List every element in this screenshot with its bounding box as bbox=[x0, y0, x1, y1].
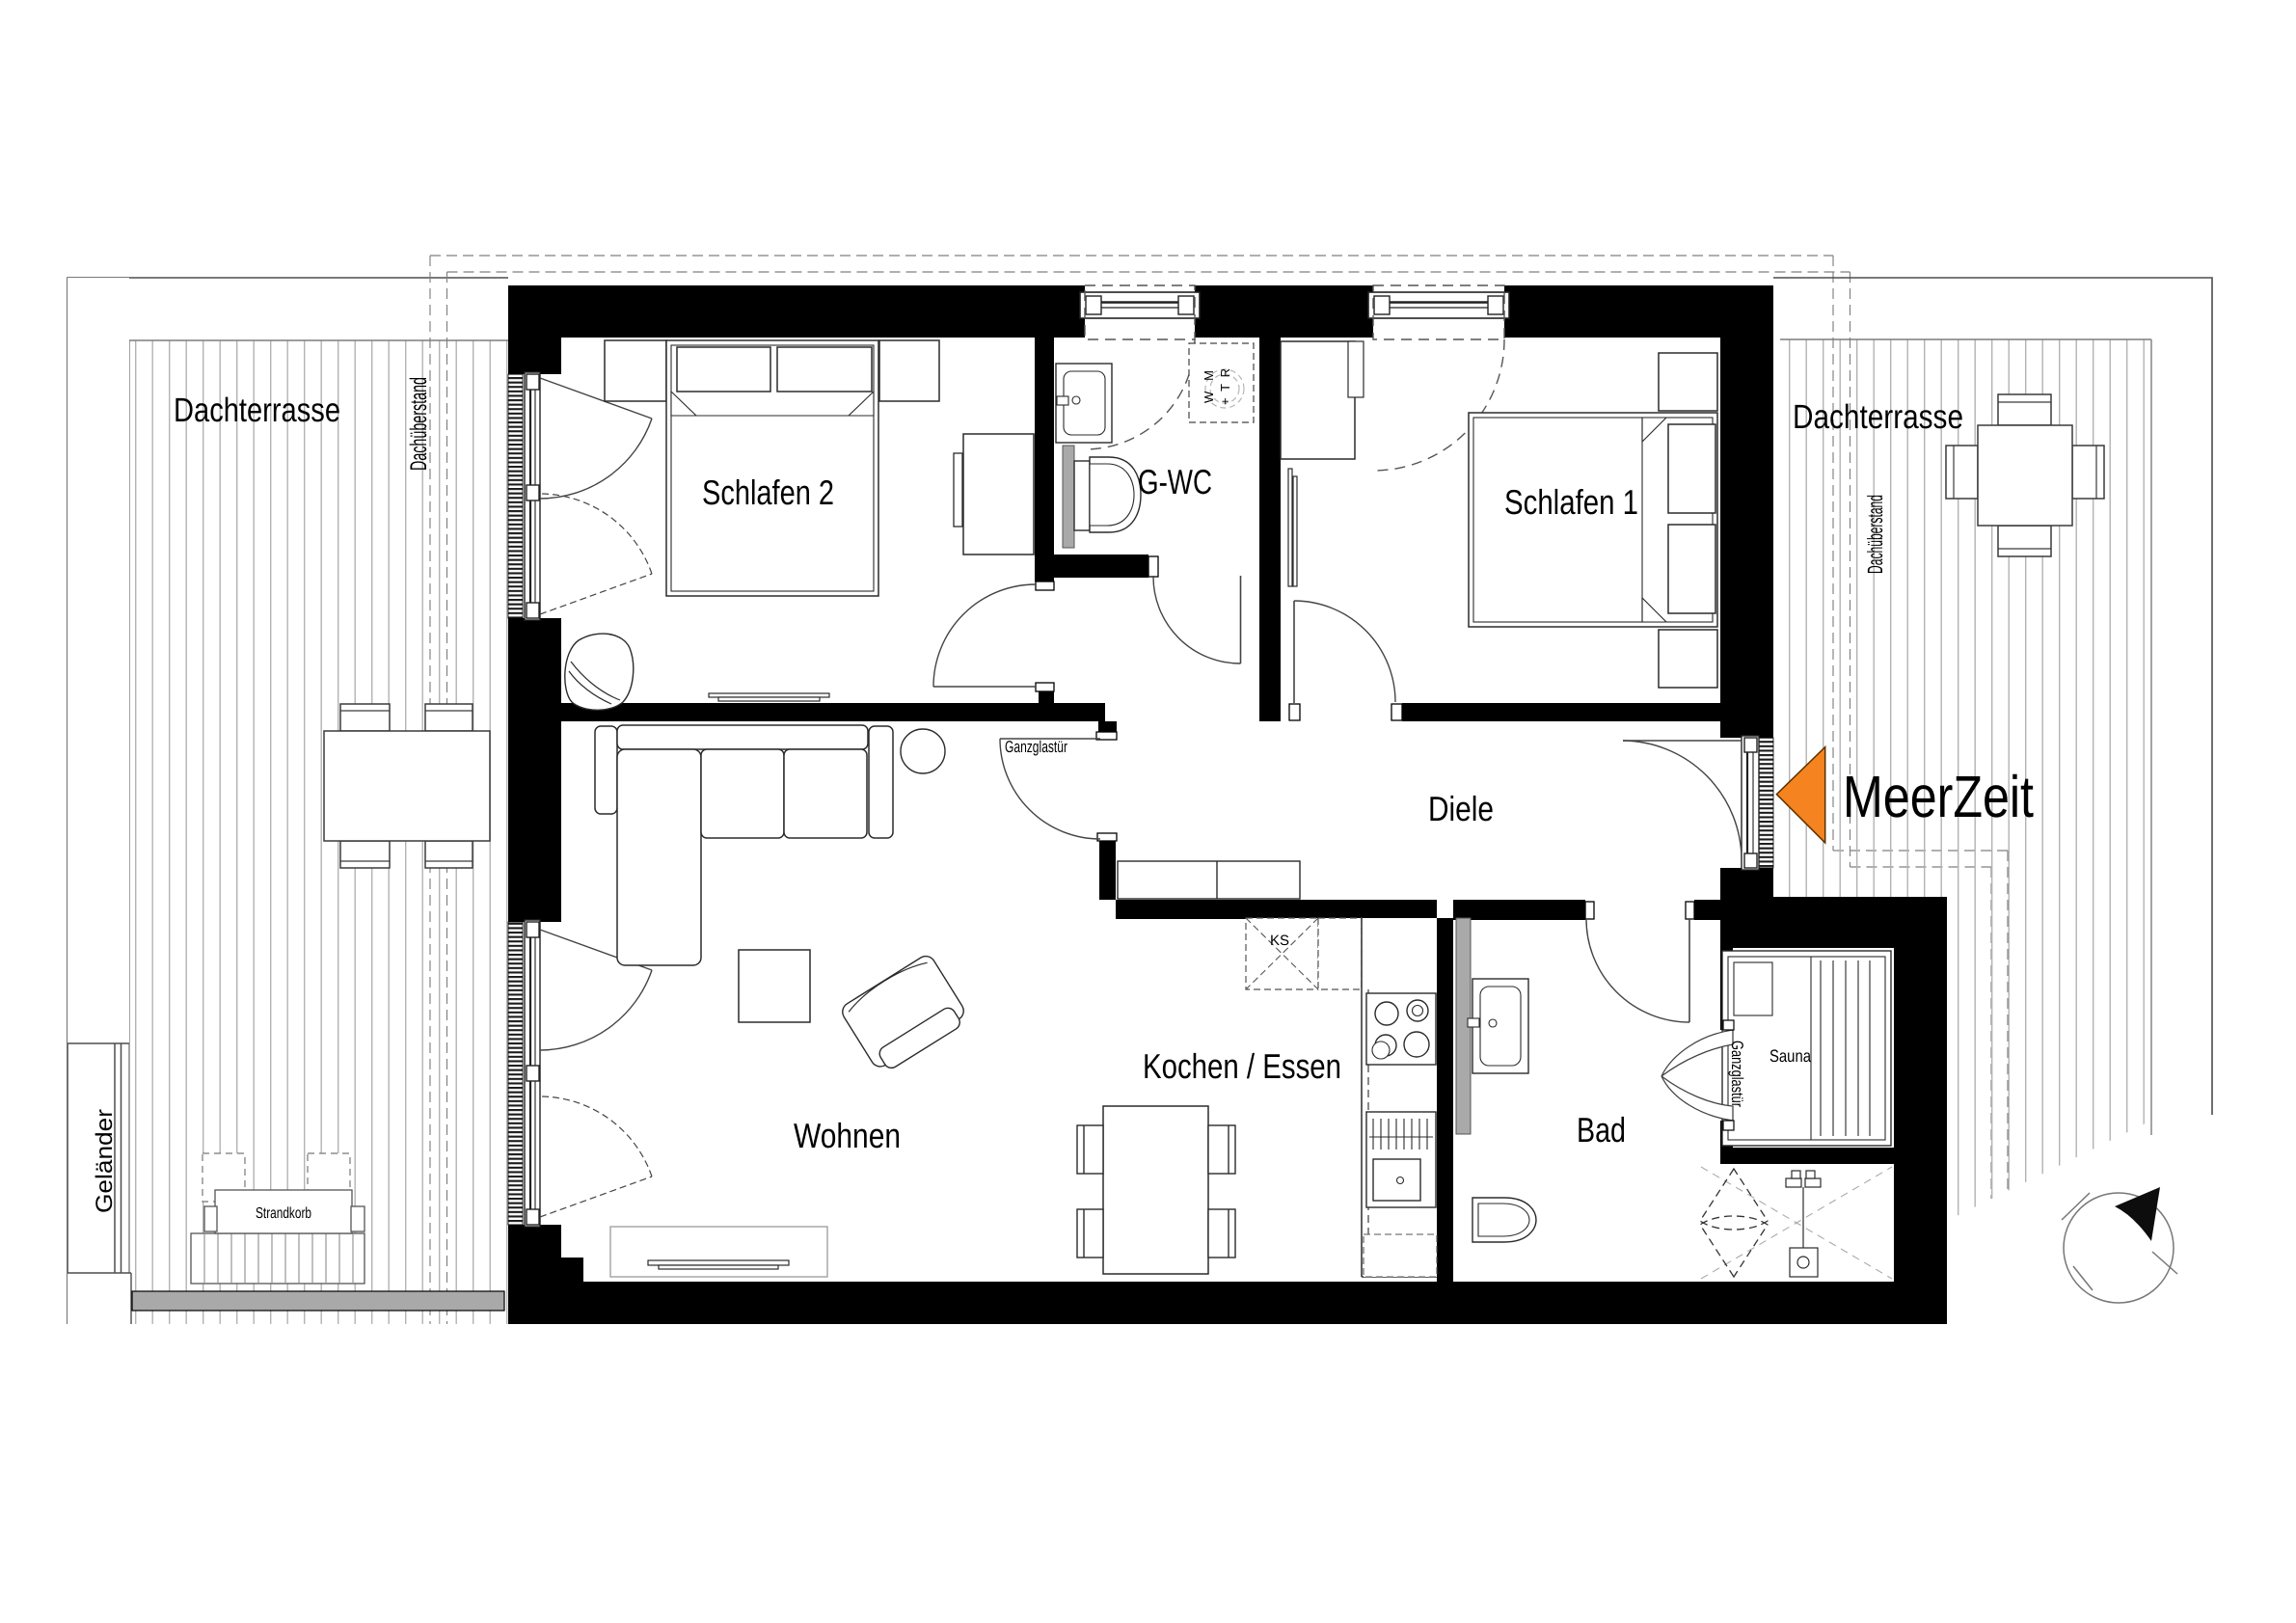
svg-text:Dachterrasse: Dachterrasse bbox=[174, 392, 340, 429]
svg-text:Geländer: Geländer bbox=[92, 1109, 118, 1213]
svg-text:Ganzglastür: Ganzglastür bbox=[1005, 738, 1067, 756]
svg-text:Dachterrasse: Dachterrasse bbox=[1793, 398, 1963, 436]
svg-text:Ganzglastür: Ganzglastür bbox=[1728, 1041, 1746, 1107]
svg-text:Schlafen 2: Schlafen 2 bbox=[702, 473, 834, 512]
svg-text:KS: KS bbox=[1270, 933, 1289, 949]
svg-text:Kochen / Essen: Kochen / Essen bbox=[1143, 1046, 1341, 1086]
svg-text:Bad: Bad bbox=[1577, 1110, 1626, 1150]
svg-text:Dachüberstand: Dachüberstand bbox=[1863, 495, 1887, 574]
svg-text:G-WC: G-WC bbox=[1138, 462, 1212, 501]
svg-text:Schlafen 1: Schlafen 1 bbox=[1504, 482, 1638, 522]
svg-text:Diele: Diele bbox=[1428, 789, 1494, 828]
svg-text:+TR: +TR bbox=[1218, 368, 1232, 405]
svg-text:Strandkorb: Strandkorb bbox=[256, 1205, 311, 1222]
svg-text:Wohnen: Wohnen bbox=[794, 1116, 901, 1155]
svg-text:MeerZeit: MeerZeit bbox=[1843, 764, 2034, 829]
svg-text:Sauna: Sauna bbox=[1769, 1046, 1812, 1066]
svg-text:Dachüberstand: Dachüberstand bbox=[406, 377, 432, 471]
